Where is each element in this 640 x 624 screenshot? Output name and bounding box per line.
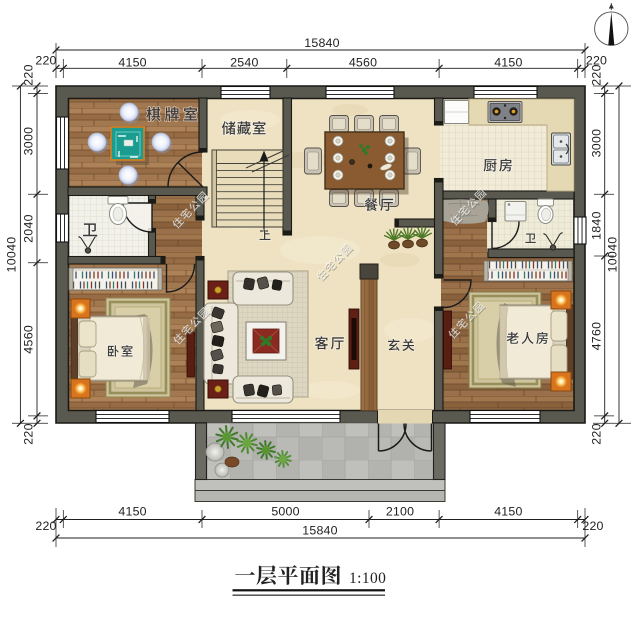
svg-text:4560: 4560 <box>349 55 377 69</box>
svg-text:5000: 5000 <box>271 505 299 519</box>
svg-text:10040: 10040 <box>606 237 620 273</box>
svg-text:2540: 2540 <box>230 55 258 69</box>
svg-text:15840: 15840 <box>304 36 339 50</box>
svg-text:220: 220 <box>590 423 604 445</box>
svg-text:220: 220 <box>22 64 36 86</box>
svg-text:3000: 3000 <box>590 129 604 158</box>
svg-text:1:100: 1:100 <box>349 570 386 587</box>
svg-text:220: 220 <box>590 64 604 86</box>
svg-text:10040: 10040 <box>5 237 19 273</box>
svg-text:15840: 15840 <box>302 524 337 538</box>
svg-text:4760: 4760 <box>590 322 604 351</box>
svg-text:220: 220 <box>582 519 603 533</box>
svg-text:4150: 4150 <box>118 505 146 519</box>
svg-text:1840: 1840 <box>590 211 604 240</box>
svg-text:2040: 2040 <box>22 214 36 243</box>
svg-text:2100: 2100 <box>386 505 414 519</box>
svg-text:4150: 4150 <box>494 55 522 69</box>
svg-text:220: 220 <box>22 423 36 445</box>
svg-text:4150: 4150 <box>494 505 522 519</box>
svg-text:3000: 3000 <box>22 127 36 156</box>
svg-text:220: 220 <box>35 54 56 68</box>
svg-text:4560: 4560 <box>22 325 36 354</box>
svg-text:220: 220 <box>35 519 56 533</box>
svg-text:4150: 4150 <box>118 55 146 69</box>
